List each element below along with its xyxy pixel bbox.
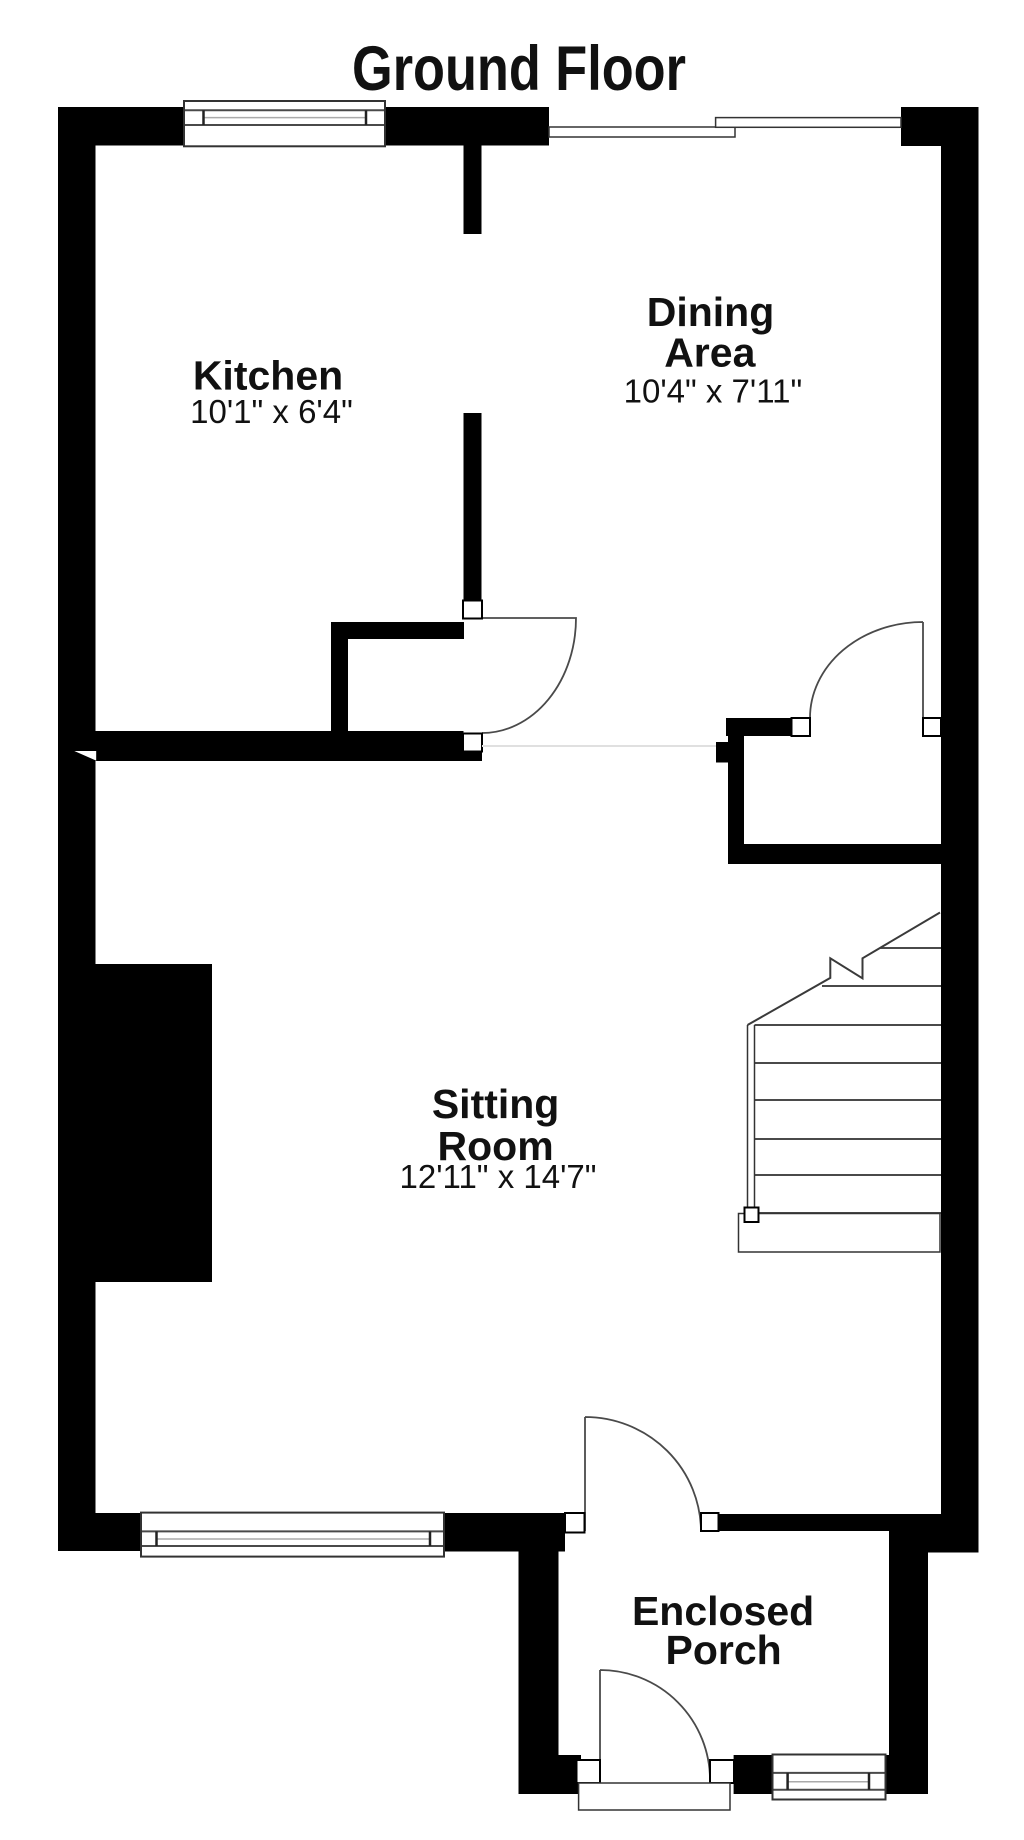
svg-text:Dining: Dining	[647, 289, 775, 335]
svg-text:Kitchen: Kitchen	[193, 353, 343, 399]
svg-text:10'4" x 7'11": 10'4" x 7'11"	[624, 373, 803, 410]
svg-text:12'11" x 14'7": 12'11" x 14'7"	[400, 1158, 597, 1195]
svg-text:Ground Floor: Ground Floor	[352, 35, 686, 105]
svg-text:Area: Area	[664, 330, 756, 376]
svg-text:10'1" x 6'4": 10'1" x 6'4"	[190, 393, 353, 430]
svg-text:Sitting: Sitting	[432, 1081, 560, 1127]
svg-text:Porch: Porch	[665, 1627, 781, 1673]
